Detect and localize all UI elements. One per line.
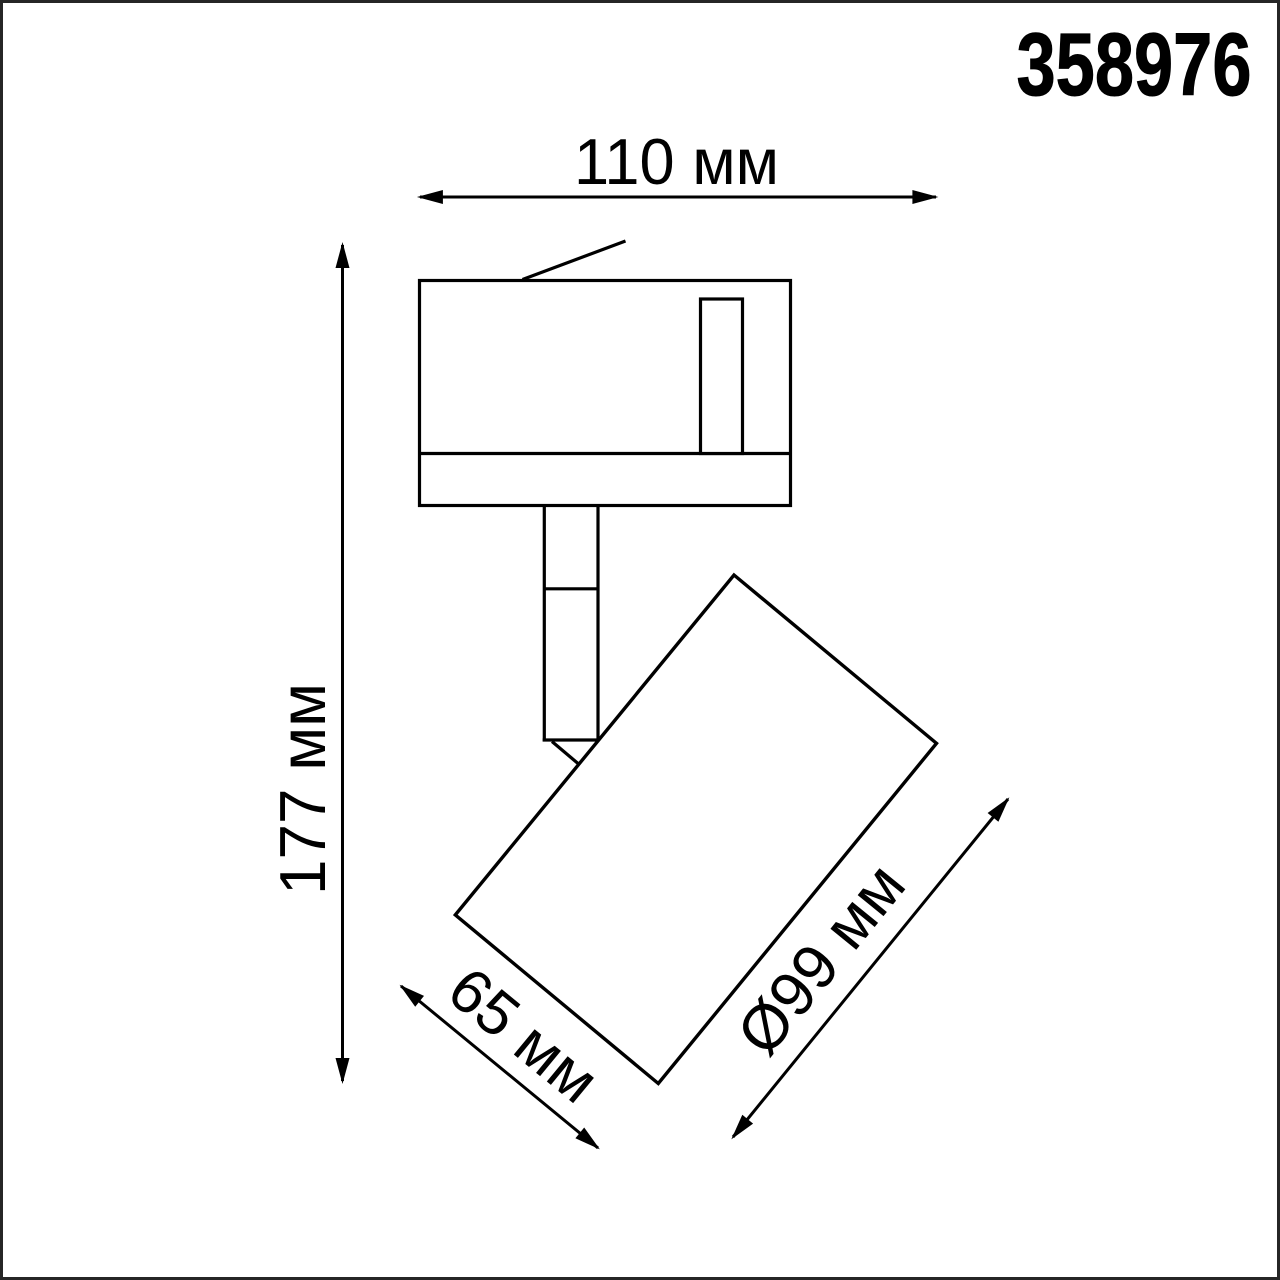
svg-text:358976: 358976 — [1017, 14, 1252, 114]
svg-text:110 мм: 110 мм — [574, 125, 779, 198]
svg-text:177 мм: 177 мм — [266, 683, 339, 895]
